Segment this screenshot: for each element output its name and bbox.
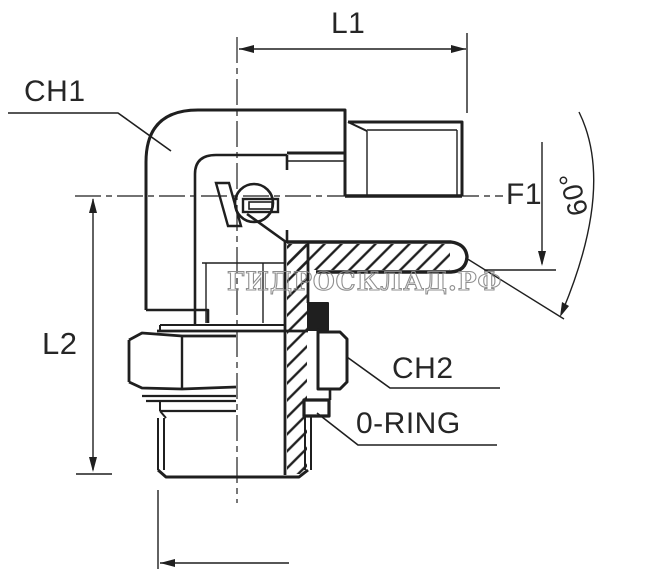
drawing-canvas: CH1 L1 F1 60° L2 CH2 0-RING ГИДРОСКЛАД.Р… — [0, 0, 668, 570]
dim-label-ch2: CH2 — [392, 354, 454, 384]
dim-label-oring: 0-RING — [356, 409, 461, 439]
manufacturer-logo — [216, 183, 286, 242]
dim-label-ch1: CH1 — [24, 77, 86, 107]
dim-label-l2: L2 — [42, 328, 77, 359]
dim-label-f1: F1 — [506, 180, 542, 210]
dimension-lines — [76, 33, 594, 569]
watermark-text: ГИДРОСКЛАД.РФ — [227, 269, 502, 294]
male-port-outline — [287, 122, 462, 196]
dim-label-l1: L1 — [331, 9, 365, 39]
